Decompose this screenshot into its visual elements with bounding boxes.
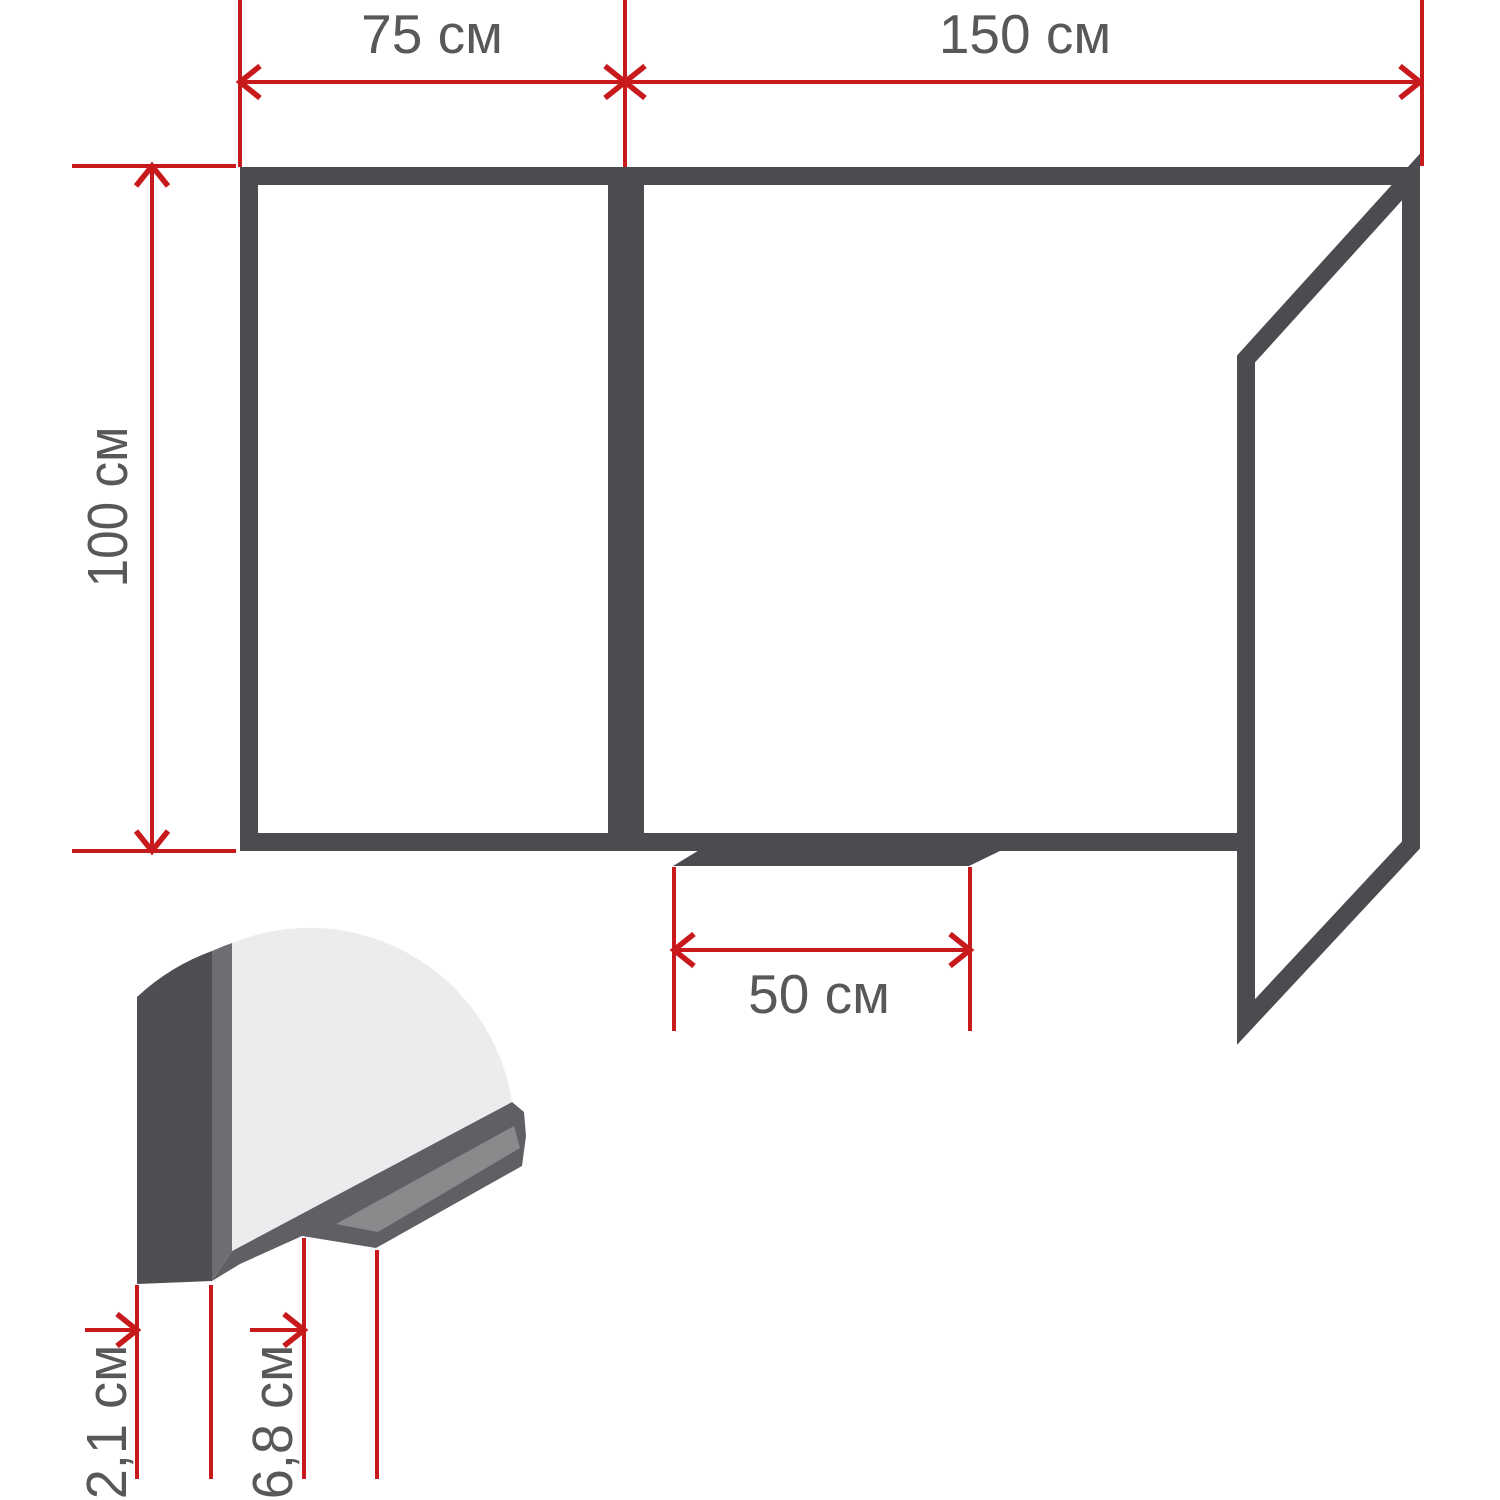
svg-text:75 см: 75 см	[361, 3, 503, 65]
svg-text:100 см: 100 см	[77, 427, 140, 588]
svg-text:150 см: 150 см	[939, 3, 1111, 65]
svg-text:6,8 см: 6,8 см	[241, 1345, 305, 1500]
svg-text:50 см: 50 см	[748, 963, 890, 1025]
svg-text:2,1 см: 2,1 см	[75, 1345, 139, 1500]
